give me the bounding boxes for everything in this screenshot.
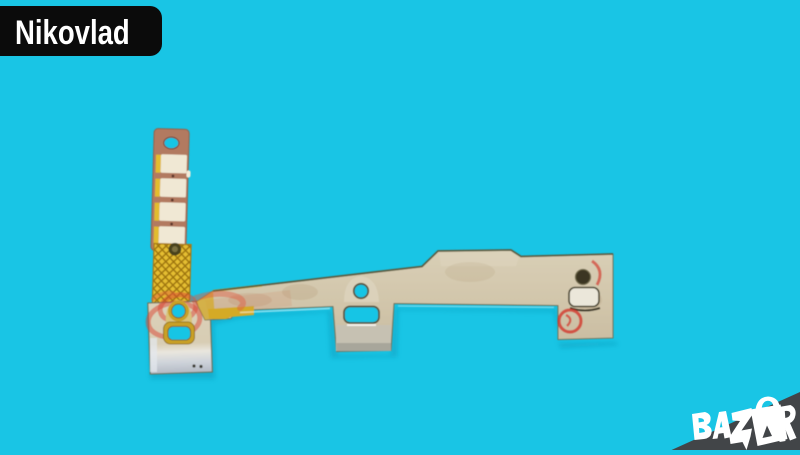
svg-text:Nikovlad: Nikovlad — [15, 13, 130, 51]
